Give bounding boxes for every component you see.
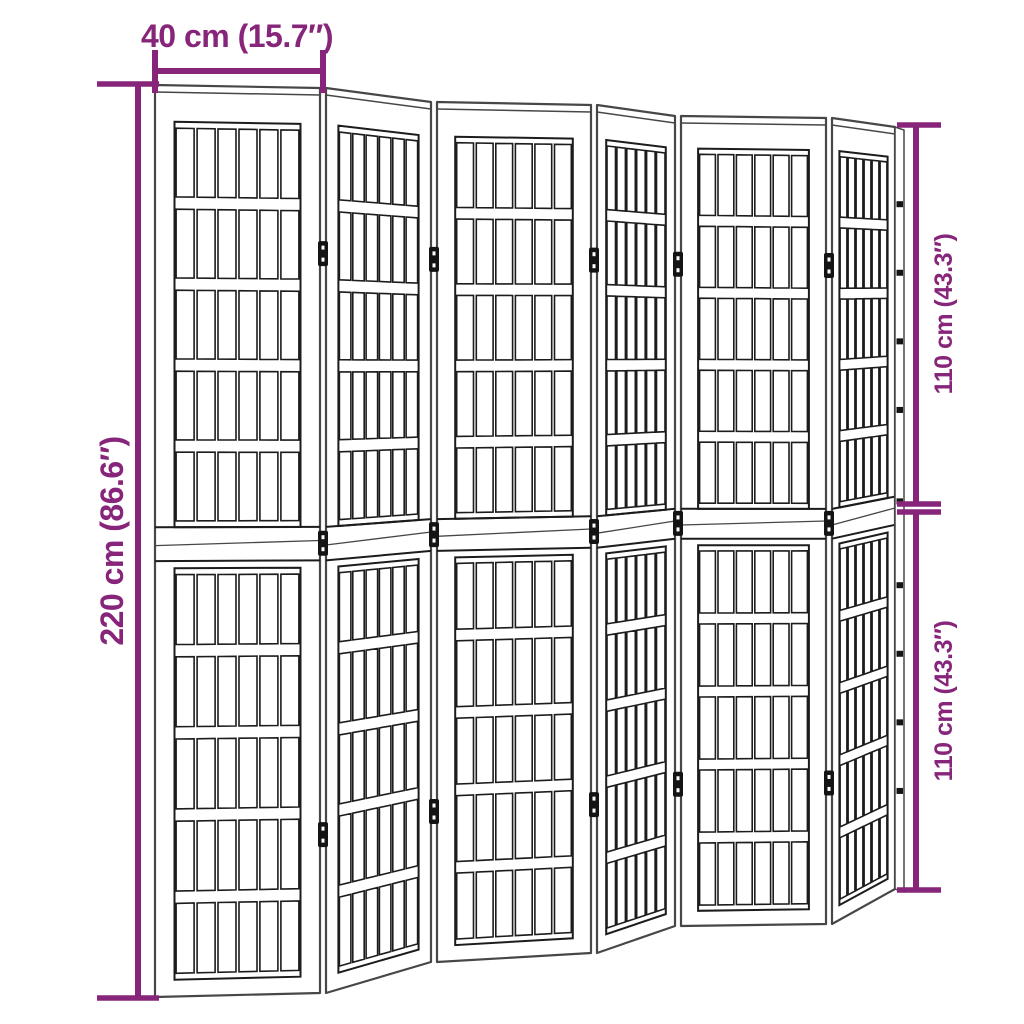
hinge-body [673, 252, 683, 277]
hinge-pin [828, 269, 831, 273]
rail-end-mark [897, 338, 904, 344]
dim-label-half-height-top: 110 cm (43.3″) [930, 234, 958, 395]
hinge [429, 799, 439, 824]
rail-end-mark [897, 407, 904, 413]
rail-end-mark [897, 201, 904, 207]
rail-end-mark [897, 651, 904, 657]
hinge-pin [433, 804, 436, 808]
dim-total-height: 220 cm (86.6″) [94, 84, 159, 998]
hinge [589, 519, 599, 544]
hinge-body [429, 522, 439, 547]
hinge-pin [433, 527, 436, 531]
dim-label-panel-width: 40 cm (15.7″) [141, 18, 333, 54]
hinge [589, 792, 599, 817]
hinge [824, 511, 834, 536]
panel-6 [832, 118, 895, 924]
hinge-body [824, 770, 834, 795]
hinge-pin [593, 252, 596, 256]
panel-5 [681, 116, 826, 926]
hinge [318, 241, 328, 266]
hinge-pin [593, 797, 596, 801]
dim-panel-width: 40 cm (15.7″) [141, 18, 333, 93]
hinge-pin [677, 256, 680, 260]
dim-label-half-height-bottom: 110 cm (43.3″) [930, 621, 958, 782]
hinge [589, 248, 599, 273]
hinge-pin [322, 535, 325, 539]
hinge-body [318, 822, 328, 847]
rail-end-mark [897, 788, 904, 794]
hinge-pin [322, 827, 325, 831]
hinge-pin [828, 257, 831, 261]
hinge-pin [828, 515, 831, 519]
dim-label-total-height: 220 cm (86.6″) [94, 436, 130, 645]
hinge [673, 252, 683, 277]
hinge [429, 522, 439, 547]
hinge-body [589, 248, 599, 273]
hinge [673, 772, 683, 797]
hinge [824, 770, 834, 795]
hinge-pin [677, 776, 680, 780]
rail-end-mark [897, 582, 904, 588]
hinge-pin [322, 547, 325, 551]
hinge-pin [433, 251, 436, 255]
hinge-body [673, 511, 683, 536]
hinge-pin [828, 787, 831, 791]
hinge [318, 531, 328, 556]
dim-half-height-top: 110 cm (43.3″) [897, 125, 958, 504]
hinge-body [673, 772, 683, 797]
hinge [318, 822, 328, 847]
hinge-pin [322, 246, 325, 250]
panel-4 [597, 105, 675, 953]
hinge-pin [322, 839, 325, 843]
hinge-body [824, 253, 834, 278]
hinge [824, 253, 834, 278]
hinge [673, 511, 683, 536]
hinge-pin [593, 536, 596, 540]
hinge-body [824, 511, 834, 536]
hinge-pin [593, 809, 596, 813]
panel-3 [437, 102, 591, 962]
hinge-pin [677, 527, 680, 531]
hinge-pin [433, 816, 436, 820]
hinge-pin [433, 263, 436, 267]
hinge-body [589, 519, 599, 544]
hinge-pin [677, 788, 680, 792]
panels-layer [155, 85, 904, 997]
hinge-pin [828, 527, 831, 531]
hinge-body [589, 792, 599, 817]
room-divider-dimension-diagram: 40 cm (15.7″) 220 cm (86.6″) 110 cm (43.… [0, 0, 1024, 1024]
diagram-canvas: 40 cm (15.7″) 220 cm (86.6″) 110 cm (43.… [0, 0, 1024, 1024]
hinge-pin [593, 524, 596, 528]
hinge-body [318, 241, 328, 266]
hinge-pin [677, 268, 680, 272]
hinge-body [429, 247, 439, 272]
hinge-body [318, 531, 328, 556]
hinge-body [429, 799, 439, 824]
panel-2 [326, 88, 431, 993]
dim-half-height-bottom: 110 cm (43.3″) [897, 512, 958, 890]
hinge-pin [828, 775, 831, 779]
rail-end-mark [897, 719, 904, 725]
hinge-pin [322, 258, 325, 262]
hinge [429, 247, 439, 272]
hinge-pin [433, 539, 436, 543]
panel-1 [155, 85, 320, 997]
rail-end-mark [897, 270, 904, 276]
hinge-pin [593, 264, 596, 268]
hinge-pin [677, 515, 680, 519]
